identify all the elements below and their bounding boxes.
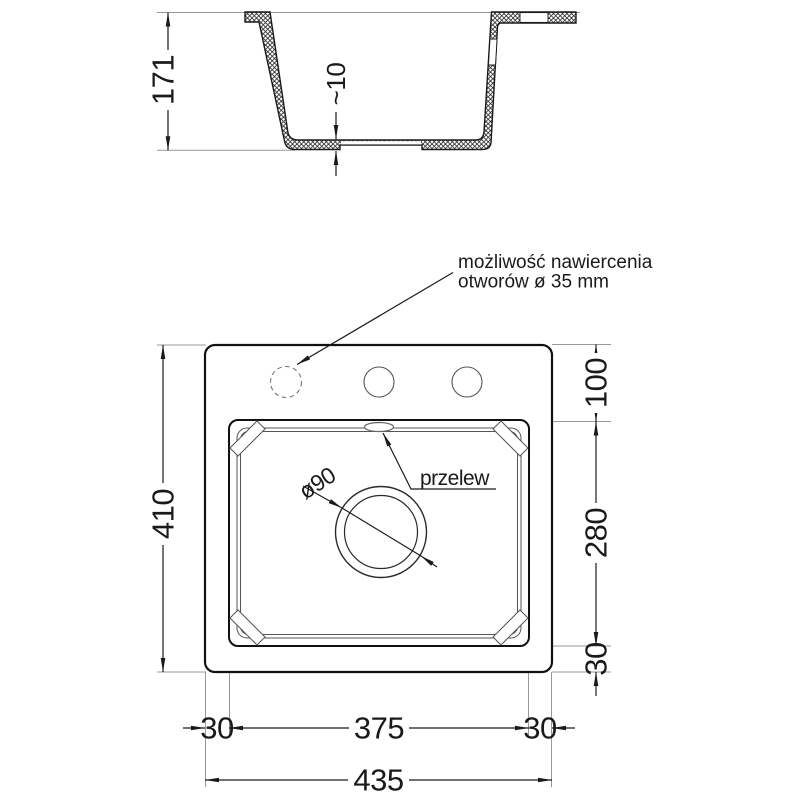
dim-top-offset: 100	[579, 345, 614, 422]
dim-margin-right-value: 30	[523, 711, 557, 746]
dim-total-depth: 410	[146, 345, 181, 672]
dim-section-depth-value: 171	[146, 55, 181, 105]
dim-bowl-depth-value: 280	[579, 508, 614, 558]
dim-margin-left-value: 30	[200, 711, 234, 746]
plan-view: ø90 przelew możliwość nawiercenia otworó…	[146, 252, 653, 798]
dim-total-depth-value: 410	[146, 489, 181, 539]
dim-bottom-chain: 30 375 30	[183, 711, 575, 746]
technical-drawing-page: 171 ~10	[0, 0, 800, 800]
dim-bottom-offset: 30	[579, 642, 614, 696]
dim-bottom-offset-value: 30	[579, 642, 614, 676]
overflow-channel-gap	[489, 39, 498, 65]
dim-total-width-value: 435	[353, 763, 403, 798]
dim-total-width: 435	[205, 763, 552, 798]
drilling-note-line2: otworów ø 35 mm	[458, 272, 609, 293]
dim-top-offset-value: 100	[579, 358, 614, 408]
floor-recess	[341, 141, 421, 144]
overflow-slot	[365, 423, 394, 432]
drilling-note-line1: możliwość nawiercenia	[458, 252, 653, 273]
bowl-outline	[229, 420, 529, 646]
overflow-label: przelew	[420, 467, 490, 490]
deck-hole-gap	[520, 13, 548, 23]
dim-bowl-width-value: 375	[354, 711, 404, 746]
dim-section-depth: 171	[146, 13, 181, 151]
section-body	[245, 12, 576, 150]
dim-floor-thickness: ~10	[321, 63, 351, 176]
dim-bowl-depth: 280	[579, 422, 614, 647]
section-view: 171 ~10	[146, 12, 581, 176]
sink-drawing: 171 ~10	[0, 0, 800, 800]
dim-floor-thickness-value: ~10	[321, 63, 351, 106]
